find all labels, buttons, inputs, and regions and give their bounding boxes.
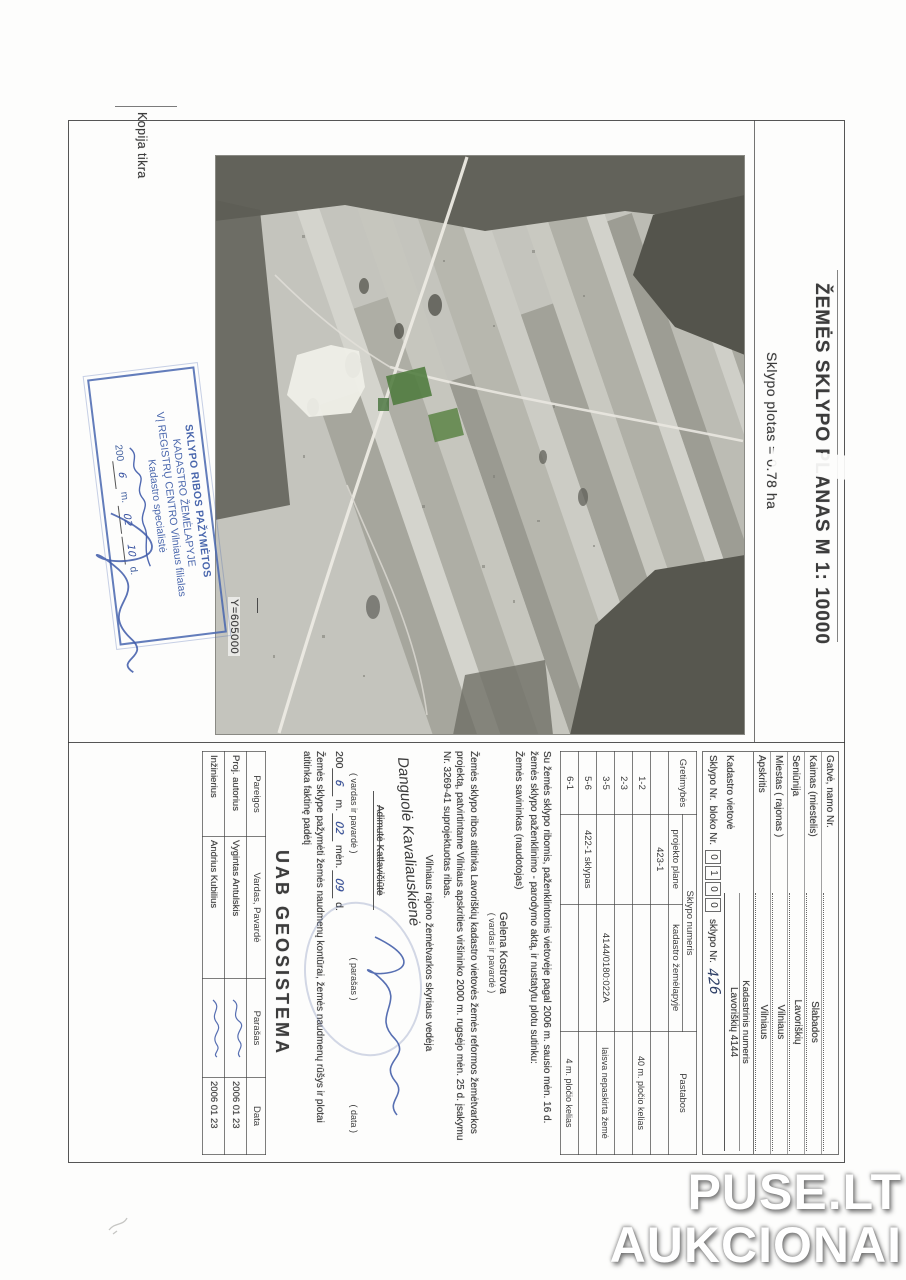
- approver-printed-name: Adimutė Katlavičiūtė: [373, 791, 385, 910]
- adjacency-cell: 4144/0180:022A: [597, 904, 615, 1032]
- adjacency-row: 3-5 4144/0180:022A laisva nepaskirta žem…: [597, 752, 615, 1155]
- company-person-name: Vygintas Antulskis: [225, 837, 247, 979]
- address-table: Gatvė, namo Nr. Kaimas (miestelis) Slaba…: [753, 751, 839, 1155]
- signature-scribble: [361, 931, 419, 1121]
- adjacency-cell: [651, 1032, 669, 1155]
- adjacency-cell: laisva nepaskirta žemė: [597, 1032, 615, 1155]
- watermark-line1: PUSE.LT: [610, 1166, 902, 1219]
- cadastre-bloko-label: bloko Nr.: [708, 806, 719, 845]
- aerial-photo: [215, 155, 745, 735]
- adjacency-cell: [615, 904, 633, 1032]
- cadastre-right: Kadastrinis numeris Lavoriškių 4144: [724, 893, 751, 1151]
- approver-role: Vilniaus rajono žemėtvarkos skyriaus ved…: [423, 751, 434, 1155]
- signature-scribble: [229, 997, 245, 1059]
- cadastre-sklypo-label: Sklypo Nr.: [708, 755, 719, 801]
- adjacency-cell: [633, 815, 651, 905]
- cadastre-vietove-label: Kadastro vietovė: [724, 755, 735, 887]
- header-parasas: Parašas: [247, 979, 266, 1078]
- adjacency-row: 6-1 4 m. pločio kelias: [561, 752, 579, 1155]
- owner-name: Gelena Kostrova: [497, 751, 509, 1155]
- m-label: m.: [333, 799, 345, 811]
- adjacency-row: 423-1: [651, 752, 669, 1155]
- address-value: Vilniaus: [755, 893, 769, 1151]
- address-row: Gatvė, namo Nr.: [821, 752, 838, 1154]
- company-role: Inžinierius: [203, 752, 225, 837]
- scanned-land-plan-document: ŽEMĖS SKLYPO PLANAS M 1: 10000 Sklypo pl…: [0, 0, 906, 1280]
- adjacency-cell: 1-2: [633, 752, 651, 815]
- company-role: Proj. autorius: [225, 752, 247, 837]
- adjacency-cell: [615, 815, 633, 905]
- company-signature: [203, 979, 225, 1078]
- adjacency-row: 2-3: [615, 752, 633, 1155]
- cadastre-plot-row: Sklypo Nr. bloko Nr. 0100 sklypo Nr. 426: [705, 755, 721, 1151]
- cadastre-sklypo-nr-handwritten: 426: [703, 968, 723, 995]
- company-person-name: Andrius Kubilius: [203, 837, 225, 979]
- address-row: Miestas ( rajonas ) Vilniaus: [770, 752, 787, 1154]
- hand-year: 6: [332, 768, 345, 798]
- adjacency-cell: [633, 904, 651, 1032]
- pencil-mark: [103, 1200, 143, 1240]
- adjacency-col-gretimybes: Gretimybės: [669, 752, 697, 815]
- signature-scribble: [207, 997, 223, 1059]
- consent-paragraph: Su žemės sklypo ribomis, paženklintomis …: [527, 751, 553, 1155]
- adjacency-col-sklypo-numeris: Sklypo numeris: [683, 815, 697, 1032]
- cadastral-number-block: Kadastro vietovė Kadastrinis numeris Lav…: [702, 751, 753, 1155]
- company-signature: [225, 979, 247, 1078]
- address-label: Apskritis: [757, 755, 768, 887]
- signature-zone: Danguolė Kavaliauskienė Adimutė Katlavič…: [361, 751, 423, 1155]
- adjacency-cell: [651, 904, 669, 1032]
- adjacency-cell: [615, 1032, 633, 1155]
- cadastre-sklypo-nr-label: sklypo Nr.: [708, 919, 719, 963]
- adjacency-row: 5-6 422-1 sklypas: [579, 752, 597, 1155]
- company-row: Inžinierius Andrius Kubilius 2006 01 23: [203, 752, 225, 1155]
- men-label: mėn.: [333, 845, 345, 868]
- adjacency-cell: [597, 815, 615, 905]
- company-row: Proj. autorius Vygintas Antulskis 2006 0…: [225, 752, 247, 1155]
- address-row: Apskritis Vilniaus: [754, 752, 770, 1154]
- title-separator-line: [754, 120, 755, 742]
- approver-handwritten-name: Danguolė Kavaliauskienė: [394, 757, 423, 927]
- adjacency-subcol-kadastro: kadastro žemėlapyje: [669, 904, 683, 1032]
- address-value: Lavoriškių: [789, 893, 803, 1151]
- address-row: Kaimas (miestelis) Slabados: [804, 752, 821, 1154]
- adjacency-cell: 5-6: [579, 752, 597, 815]
- coordinate-tick: [257, 598, 258, 613]
- adjacency-table: Gretimybės Sklypo numeris Pastabos proje…: [560, 751, 697, 1155]
- copy-certification-note: Kopija tikra: [135, 112, 149, 179]
- project-paragraph: Žemės sklypo ribos atitinka Lavoriškių k…: [440, 751, 480, 1155]
- address-value: Slabados: [806, 893, 820, 1151]
- hand-day: 09: [332, 870, 345, 900]
- address-value: [823, 893, 837, 1151]
- adjacency-col-pastabos: Pastabos: [669, 1032, 697, 1155]
- cadastre-header: Kadastrinis numeris: [739, 893, 751, 1151]
- address-value: Vilniaus: [772, 893, 786, 1151]
- company-date: 2006 01 23: [225, 1078, 247, 1155]
- caption-date: ( data ): [349, 1104, 359, 1133]
- caption-name: ( vardas ir pavardė ): [349, 773, 359, 854]
- owner-role-label: Žemės savininkas (naudotojas): [513, 751, 524, 1155]
- adjacency-cell: 3-5: [597, 752, 615, 815]
- bloko-digit: 1: [705, 866, 721, 880]
- coordinate-label: Y=605000: [228, 597, 240, 656]
- date-prefix: 200: [333, 751, 345, 769]
- header-vardas-pavarde: Vardas, Pavardė: [247, 837, 266, 979]
- stamp-m-label: m.: [118, 491, 130, 503]
- adjacency-cell: 40 m. pločio kelias: [633, 1032, 651, 1155]
- bloko-digit: 0: [705, 850, 721, 864]
- owner-name-caption: ( vardas ir pavardė ): [487, 751, 497, 1155]
- stamp-date-prefix: 200: [113, 444, 126, 462]
- adjacency-cell: 6-1: [561, 752, 579, 815]
- company-date: 2006 01 23: [203, 1078, 225, 1155]
- watermark: PUSE.LT AUKCIONAI: [610, 1166, 902, 1272]
- header-pareigos: Pareigos: [247, 752, 266, 837]
- company-signature-table: Pareigos Vardas, Pavardė Parašas Data Pr…: [202, 751, 266, 1155]
- cadastre-top-row: Kadastro vietovė Kadastrinis numeris Lav…: [724, 755, 751, 1151]
- adjacency-cell: 422-1 sklypas: [579, 815, 597, 905]
- bloko-digit: 0: [705, 882, 721, 896]
- adjacency-cell: 2-3: [615, 752, 633, 815]
- plot-area-subtitle: Sklypo plotas = 0.78 ha: [764, 352, 780, 509]
- header-data: Data: [247, 1078, 266, 1155]
- address-label: Seniūnija: [791, 755, 802, 887]
- address-label: Gatvė, namo Nr.: [825, 755, 836, 887]
- adjacency-row: 1-2 40 m. pločio kelias: [633, 752, 651, 1155]
- address-label: Miestas ( rajonas ): [774, 755, 785, 887]
- adjacency-cell: [561, 815, 579, 905]
- adjacency-subcol-projekto: projekto plane: [669, 815, 683, 905]
- adjacency-cell: [651, 752, 669, 815]
- approval-block: Vilniaus rajono žemėtvarkos skyriaus ved…: [332, 751, 434, 1155]
- adjacency-cell: [579, 904, 597, 1032]
- address-row: Seniūnija Lavoriškių: [787, 752, 804, 1154]
- cadastre-vietove-value: Lavoriškių 4144: [724, 893, 739, 1151]
- address-label: Kaimas (miestelis): [808, 755, 819, 887]
- adjacency-cell: [561, 904, 579, 1032]
- signature-scribble: [78, 504, 179, 677]
- hand-month: 02: [332, 813, 345, 843]
- adjacency-cell: [579, 1032, 597, 1155]
- bloko-digit: 0: [705, 898, 721, 912]
- info-panel: Gatvė, namo Nr. Kaimas (miestelis) Slaba…: [68, 742, 845, 1163]
- adjacency-cell: 423-1: [651, 815, 669, 905]
- bloko-digit-boxes: 0100: [705, 850, 721, 914]
- adjacency-cell: 4 m. pločio kelias: [561, 1032, 579, 1155]
- copy-note-line: [115, 106, 177, 107]
- company-name: UAB GEOSISTEMA: [271, 751, 292, 1155]
- company-header-row: Pareigos Vardas, Pavardė Parašas Data: [247, 752, 266, 1155]
- watermark-line2: AUKCIONAI: [610, 1219, 902, 1272]
